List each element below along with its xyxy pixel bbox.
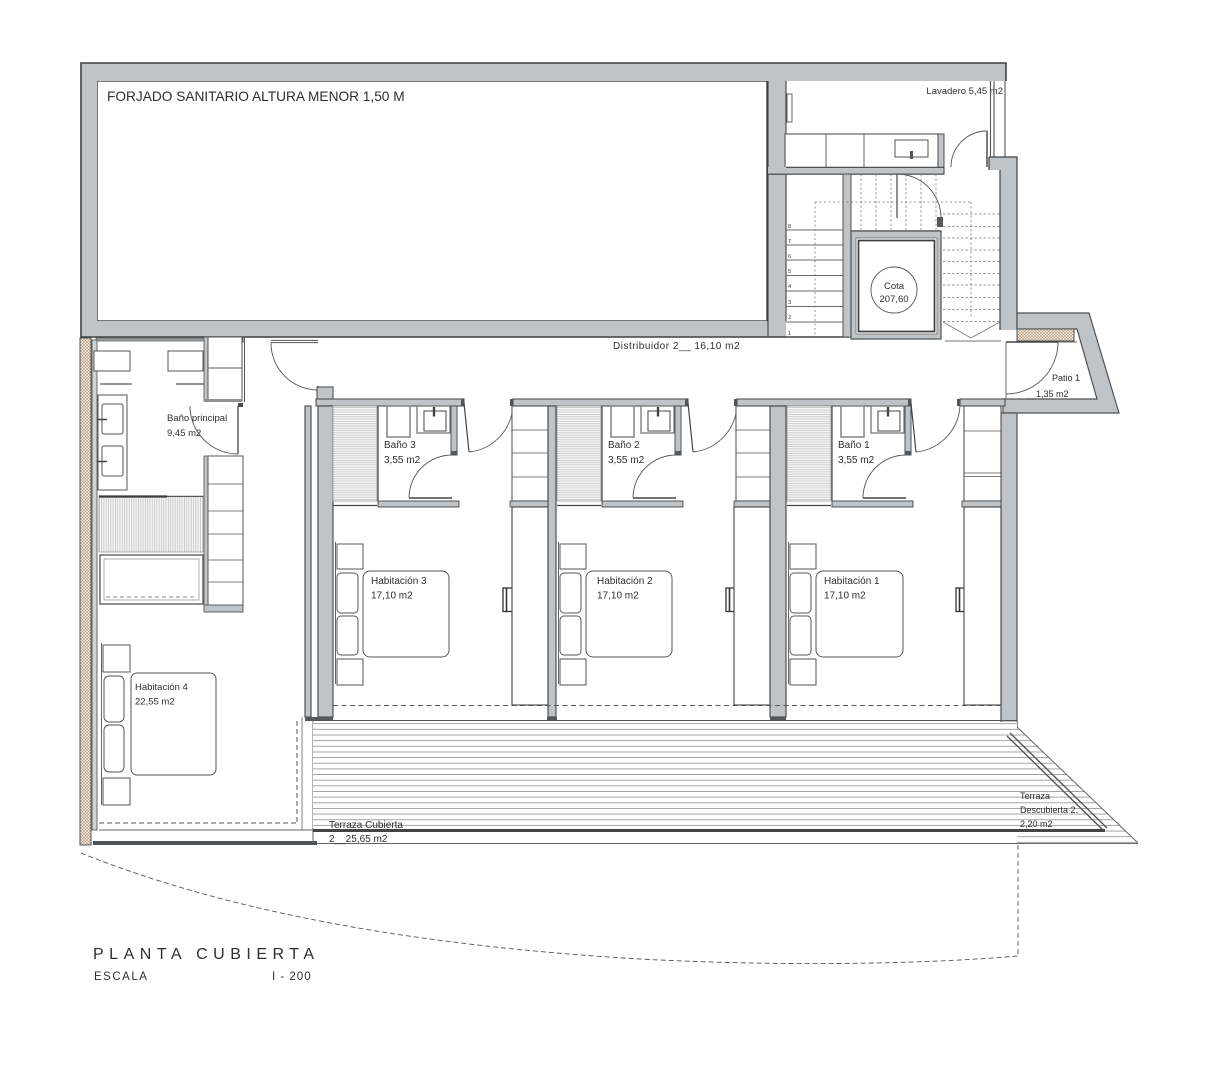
svg-text:Habitación 2: Habitación 2 xyxy=(597,576,653,587)
svg-text:6: 6 xyxy=(788,254,791,260)
svg-text:Distribuidor 2__ 16,10 m2: Distribuidor 2__ 16,10 m2 xyxy=(613,341,740,352)
svg-text:Habitación 1: Habitación 1 xyxy=(824,576,880,587)
svg-text:207,60: 207,60 xyxy=(879,294,908,305)
svg-text:22,55 m2: 22,55 m2 xyxy=(135,697,175,708)
svg-text:Habitación 3: Habitación 3 xyxy=(371,576,427,587)
svg-text:2,20 m2: 2,20 m2 xyxy=(1020,819,1053,829)
svg-text:__1,35 m2: __1,35 m2 xyxy=(1025,389,1069,399)
svg-text:7: 7 xyxy=(788,239,791,245)
svg-text:I - 200: I - 200 xyxy=(272,971,312,983)
svg-text:17,10 m2: 17,10 m2 xyxy=(597,591,639,602)
svg-text:3,55 m2: 3,55 m2 xyxy=(608,455,645,466)
svg-text:PLANTA CUBIERTA: PLANTA CUBIERTA xyxy=(93,946,320,963)
svg-text:5: 5 xyxy=(788,269,791,275)
svg-text:Descubierta 2.: Descubierta 2. xyxy=(1020,805,1078,815)
svg-text:3,55 m2: 3,55 m2 xyxy=(384,455,421,466)
svg-text:3: 3 xyxy=(788,300,791,306)
svg-text:Terraza Cubierta: Terraza Cubierta xyxy=(329,820,403,831)
svg-text:4: 4 xyxy=(788,284,791,290)
svg-text:Habitación 4: Habitación 4 xyxy=(135,682,188,693)
svg-text:Lavadero 5,45 m2: Lavadero 5,45 m2 xyxy=(926,86,1003,97)
svg-text:Baño 1: Baño 1 xyxy=(838,440,870,451)
svg-text:Baño 3: Baño 3 xyxy=(384,440,416,451)
svg-text:FORJADO SANITARIO ALTURA MENOR: FORJADO SANITARIO ALTURA MENOR 1,50 M xyxy=(107,89,405,104)
svg-text:2: 2 xyxy=(788,315,791,321)
svg-text:Baño 2: Baño 2 xyxy=(608,440,640,451)
svg-text:Cota: Cota xyxy=(884,281,905,292)
svg-text:17,10 m2: 17,10 m2 xyxy=(824,591,866,602)
svg-text:2__25,65 m2: 2__25,65 m2 xyxy=(329,834,388,845)
svg-text:8: 8 xyxy=(788,224,791,230)
svg-text:ESCALA: ESCALA xyxy=(94,971,148,983)
svg-text:1: 1 xyxy=(788,331,791,337)
svg-text:Baño principal: Baño principal xyxy=(167,413,227,424)
svg-text:3,55 m2: 3,55 m2 xyxy=(838,455,875,466)
svg-text:17,10 m2: 17,10 m2 xyxy=(371,591,413,602)
svg-text:Terraza: Terraza xyxy=(1020,791,1050,801)
svg-text:Patio 1: Patio 1 xyxy=(1052,373,1080,383)
